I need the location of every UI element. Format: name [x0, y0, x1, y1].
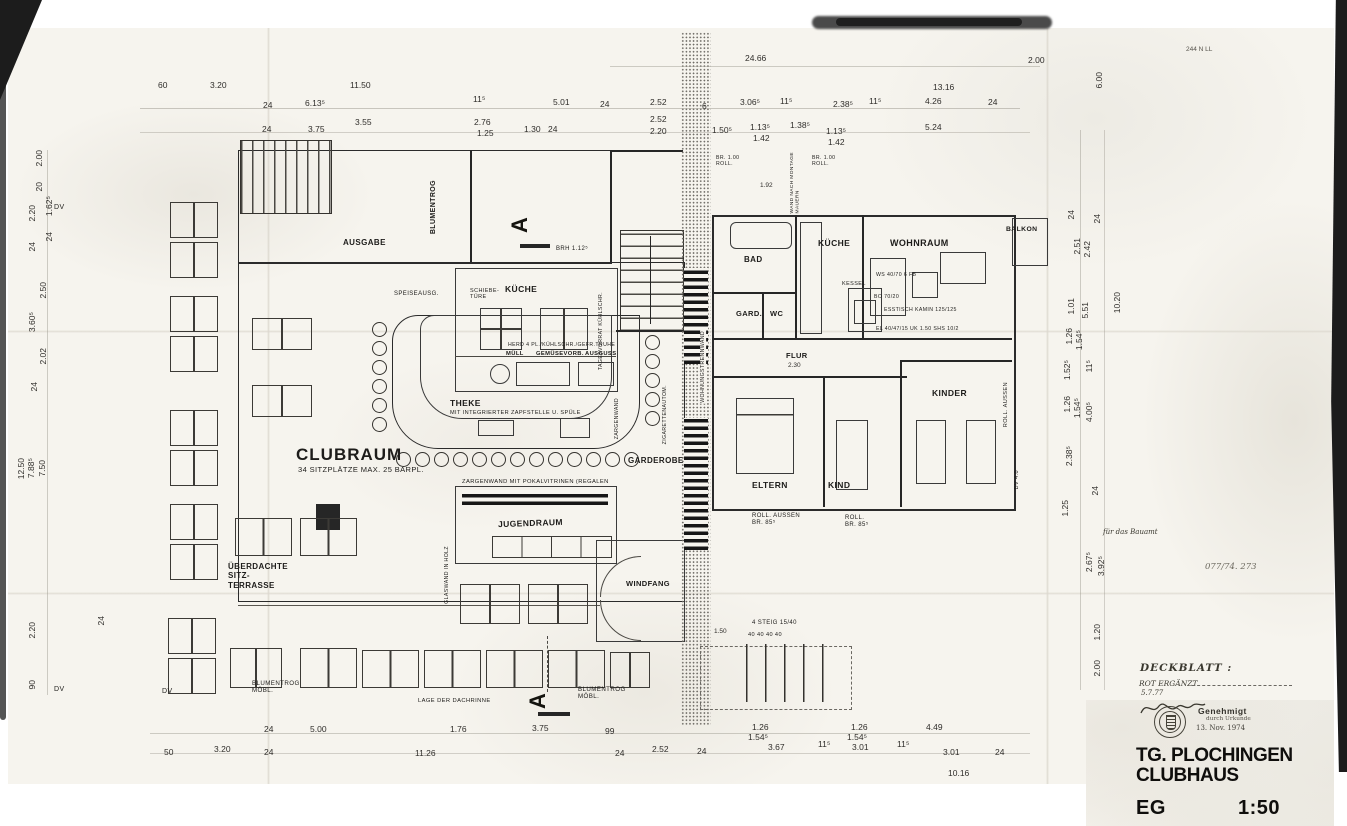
dim-value: 3.06⁵: [740, 97, 760, 107]
bed-kinder: [916, 420, 946, 484]
dim-value: 3.60⁵: [27, 312, 37, 332]
dim-value: 2.00: [1028, 55, 1045, 65]
terrace-table: [362, 650, 419, 688]
dim-value: 1.52⁵: [1062, 360, 1072, 380]
bar-stool: [372, 379, 387, 394]
dim-value: 1.50⁵: [712, 125, 732, 135]
dim-value: 24: [600, 99, 609, 109]
label-terrasse: ÜBERDACHTE SITZ- TERRASSE: [228, 562, 288, 590]
wall: [610, 150, 683, 152]
dim-value: 11.26: [415, 748, 436, 758]
dim-value: 1.13⁵: [750, 122, 770, 132]
dim-value: 5.01: [553, 97, 570, 107]
scanned-floorplan: AUSGABE BLUMENTROG KÜCHE SPEISEAUSG. SCH…: [0, 0, 1347, 826]
dim-value: 24: [697, 746, 706, 756]
dim-value: 1.54⁵: [1072, 398, 1082, 418]
terrace-table: [170, 450, 218, 486]
dim-value: 6.00: [1094, 72, 1104, 89]
dim-value: 4.49: [926, 722, 943, 732]
note-wand-montage: WAND NACH MONTAGE MAUERN: [790, 152, 801, 213]
section-marker-bar: [538, 712, 570, 716]
bar-stool: [645, 354, 660, 369]
room-label-blumentrog: BLUMENTROG: [430, 180, 438, 234]
dim-value: 24: [27, 242, 37, 251]
dim-value: 2.20: [27, 205, 37, 222]
dim-value: 24: [262, 124, 271, 134]
bar-stool: [491, 452, 506, 467]
room-label-kueche-whg: KÜCHE: [818, 238, 850, 248]
note-zigarettenautomat: ZIGARETTENAUTOM.: [662, 385, 668, 444]
bar-stool: [645, 335, 660, 350]
note-bauamt-handwritten: für das Bauamt: [1103, 528, 1158, 536]
bar-stool: [567, 452, 582, 467]
note-dv: DV: [162, 688, 173, 696]
terrace-table: [170, 504, 218, 540]
dim-value: 7.50: [37, 460, 47, 477]
approval-seal: [1154, 706, 1186, 738]
note-dv40-vertical: DV 4.0: [1014, 470, 1021, 490]
dim-value: 24: [44, 232, 54, 241]
dim-value: 1.25: [477, 128, 494, 138]
terrace-table: [548, 650, 605, 688]
dim-value: 7.88⁵: [26, 458, 36, 478]
bar-stool: [645, 411, 660, 426]
note-brh: BRH 1.12⁵: [556, 246, 588, 253]
section-marker-a-bottom: A: [525, 693, 551, 709]
dim-value: 1.38⁵: [790, 120, 810, 130]
dim-value: 2.76: [474, 117, 491, 127]
terrace-table: [170, 242, 218, 278]
dim-value: 2.52: [650, 97, 667, 107]
note-dv: DV: [54, 686, 65, 694]
dim-value: 11⁵: [818, 739, 830, 749]
terrace-table: [610, 652, 650, 688]
dim-value: 3.67: [768, 742, 785, 752]
note-zargenwand: ZARGENWAND MIT POKALVITRINEN (REGALEN: [462, 479, 609, 486]
dim-value: 2.00: [1092, 660, 1102, 677]
dim-value: 1.26: [1062, 396, 1072, 413]
room-label-garderobe: GARDEROBE: [628, 456, 684, 465]
terrace-table: [424, 650, 481, 688]
dim-value: 1.26: [851, 722, 868, 732]
bar-stool: [605, 452, 620, 467]
dim-value: 24: [263, 100, 272, 110]
dim-value: 2.67⁵: [1084, 552, 1094, 572]
note-wohnungstrennwand: WOHNUNGSTRENNWAND: [700, 330, 706, 404]
note-glaswand: GLASWAND IN HOLZ: [444, 546, 450, 604]
terrace-table: [170, 336, 218, 372]
dimension-line: [140, 132, 1030, 133]
staircase-central: [620, 230, 684, 332]
room-label-kind: KIND: [828, 480, 850, 490]
note-height-reference: 244 N LL: [1186, 46, 1212, 53]
room-label-eltern: ELTERN: [752, 480, 788, 490]
dim-value: 1.30: [524, 124, 541, 134]
note-bo: BO 70/20: [874, 294, 899, 300]
dim-value: 3.01: [943, 747, 960, 757]
dim-value: 1.54⁵: [1074, 330, 1084, 350]
bar-stool: [472, 452, 487, 467]
dim-value: 1.42: [828, 137, 845, 147]
dim-value: 99: [605, 726, 614, 736]
note-dv: DV: [54, 204, 65, 212]
terrace-table: [170, 296, 218, 332]
dim-value: 12.50: [16, 458, 26, 479]
dim-value: 24: [1066, 210, 1076, 219]
dim-value: 13.16: [933, 82, 954, 92]
dim-value: 4.26: [925, 96, 942, 106]
bar-stools-left: [372, 322, 387, 432]
bar-stool: [434, 452, 449, 467]
dim-value: 2.20: [27, 622, 37, 639]
dim-value: 1.42: [753, 133, 770, 143]
bed-eltern: [736, 398, 794, 474]
bar-fixture: [560, 418, 590, 438]
dim-value: 90: [27, 680, 37, 689]
note-steig-dims: 40 40 40 40: [748, 632, 782, 639]
wall: [762, 292, 764, 340]
title-scale: 1:50: [1238, 797, 1280, 820]
note-br-roll-right: BR. 1.00 ROLL.: [812, 155, 835, 167]
revision-dash-line: [1192, 685, 1292, 686]
dim-value: 1.54⁵: [847, 732, 867, 742]
dim-value: 1.54⁵: [748, 732, 768, 742]
dim-value: 10.16: [948, 768, 969, 778]
dim-value: 24: [548, 124, 557, 134]
vitrine-shelf: [462, 490, 608, 505]
table: [252, 385, 312, 417]
dim-value: 5.51: [1080, 302, 1090, 319]
dim-value: 1.92: [760, 182, 773, 189]
dim-value: 11⁵: [1084, 360, 1094, 372]
dim-value: 2.42: [1082, 241, 1092, 258]
bar-stool: [645, 373, 660, 388]
wall: [616, 330, 683, 332]
label-theke-sub: MIT INTEGRIERTER ZAPFSTELLE U. SPÜLE: [450, 410, 581, 417]
terrace-table: [528, 584, 588, 624]
dim-value: 10.20: [1112, 292, 1122, 313]
dim-value: 24: [264, 724, 273, 734]
bar-stool: [529, 452, 544, 467]
approval-stamp-text: Genehmigt: [1198, 706, 1247, 716]
wall: [900, 360, 1012, 362]
dim-value: 11.50: [350, 80, 371, 90]
dim-value: 24: [988, 97, 997, 107]
dim-value: 3.20: [210, 80, 227, 90]
note-roll-aussen-vertical: ROLL. AUSSEN: [1003, 382, 1010, 427]
bar-stools-right: [645, 335, 660, 426]
dim-value: 2.52: [650, 114, 667, 124]
dim-value: 1.50: [714, 628, 727, 635]
dim-value: 3.75: [308, 124, 325, 134]
dim-value: 1.62⁵: [44, 196, 54, 216]
dim-value: 6.13⁵: [305, 98, 325, 108]
bar-stool: [548, 452, 563, 467]
deckblatt-label: DECKBLATT :: [1140, 662, 1232, 674]
bar-stool: [372, 398, 387, 413]
dim-value: 3.20: [214, 744, 231, 754]
dim-value: 3.75: [532, 723, 549, 733]
terrace-table: [300, 518, 357, 556]
dim-value: 5.24: [925, 122, 942, 132]
dim-value: 1.26: [1064, 328, 1074, 345]
table: [252, 318, 312, 350]
scan-artifact-left-edge: [0, 60, 6, 720]
dim-value: 1.20: [1092, 624, 1102, 641]
room-label-gard: GARD.: [736, 310, 762, 319]
dim-value: 3.92⁵: [1096, 556, 1106, 576]
dim-value: 2.38⁵: [1064, 446, 1074, 466]
dim-value: 60: [158, 80, 167, 90]
dimension-line: [150, 753, 1030, 754]
room-label-kueche-club: KÜCHE: [505, 284, 537, 294]
bed-kinder: [966, 420, 996, 484]
staircase-northwest: [240, 140, 332, 214]
terrace-table: [486, 650, 543, 688]
room-label-flur: FLUR: [786, 352, 808, 361]
dimension-line: [150, 733, 1030, 734]
section-marker-bar: [520, 244, 550, 248]
note-esstisch: ESSTISCH KAMIN 125/125: [884, 307, 957, 313]
exterior-steps: [746, 644, 828, 702]
wall: [470, 150, 472, 262]
room-label-wc: WC: [770, 310, 783, 319]
wall: [795, 215, 797, 340]
dim-value: 3.01: [852, 742, 869, 752]
wardrobe-lockers: [684, 418, 708, 550]
title-project2: CLUBHAUS: [1136, 765, 1239, 787]
bar-stools-bottom: [396, 452, 639, 467]
dim-value: 2.50: [38, 282, 48, 299]
dim-value: 1.13⁵: [826, 126, 846, 136]
dim-value: 24: [1092, 214, 1102, 223]
stipple-wall: [681, 32, 711, 726]
dim-value: 24: [995, 747, 1004, 757]
wall: [712, 338, 1012, 340]
bar-fixture: [478, 420, 514, 436]
fold-crease: [1046, 28, 1049, 784]
terrace-table: [460, 584, 520, 624]
terrace-table: [170, 544, 218, 580]
note-steig: 4 STEIG 15/40: [752, 620, 797, 627]
table: [492, 536, 612, 558]
room-label-kessel: KESSEL: [842, 281, 866, 287]
label-blumentrog-moebl-left: BLUMENTROG MÖBL.: [252, 680, 300, 695]
note-lage-dachrinne: LAGE DER DACHRINNE: [418, 698, 491, 705]
dim-value: 2.51: [1072, 238, 1082, 255]
note-br-roll-left: BR. 1.00 ROLL.: [716, 155, 739, 167]
dim-value: 6: [702, 101, 707, 111]
dim-value: 2.38⁵: [833, 99, 853, 109]
bar-counter-inner: [420, 315, 612, 419]
terrace-table: [168, 618, 216, 654]
bar-stool: [372, 417, 387, 432]
note-roll-aussen: ROLL. AUSSEN BR. 85⁵: [752, 513, 800, 527]
room-label-bad: BAD: [744, 255, 763, 264]
room-label-balkon: BALKON: [1006, 226, 1037, 234]
dim-value: 2.30: [788, 362, 801, 369]
revision-date: 5.7.77: [1141, 689, 1163, 697]
stair-arrow: [650, 236, 651, 324]
note-speiseausgabe: SPEISEAUSG.: [394, 291, 439, 298]
bar-stool: [372, 322, 387, 337]
terrace-table: [300, 648, 357, 688]
section-line: [547, 636, 548, 692]
dim-value: 1.01: [1066, 298, 1076, 315]
wall: [712, 376, 907, 378]
dim-value: 1.76: [450, 724, 467, 734]
approval-stamp-date: 13. Nov. 1974: [1196, 724, 1245, 732]
dim-value: 11⁵: [897, 739, 909, 749]
dim-value: 24.66: [745, 53, 766, 63]
note-roll: ROLL. BR. 85⁵: [845, 515, 869, 529]
dimension-line: [1104, 130, 1105, 690]
revision-note: ROT ERGÄNZT: [1139, 679, 1198, 688]
dim-value: 5.00: [310, 724, 327, 734]
terrace-table: [168, 658, 216, 694]
title-project: TG. PLOCHINGEN: [1136, 745, 1293, 767]
bar-stool: [372, 360, 387, 375]
title-floor: EG: [1136, 797, 1166, 820]
dim-value: 24: [96, 616, 106, 625]
bar-stool: [372, 341, 387, 356]
room-label-theke: THEKE: [450, 398, 481, 408]
bar-stool: [645, 392, 660, 407]
dim-value: 1.25: [1060, 500, 1070, 517]
note-ws: WS 40/70 6 FB: [876, 272, 916, 278]
dim-value: 20: [34, 182, 44, 191]
dim-value: 2.02: [38, 348, 48, 365]
bar-stool: [586, 452, 601, 467]
bar-stool: [510, 452, 525, 467]
label-blumentrog-moebl-right: BLUMENTROG MÖBL.: [578, 686, 626, 701]
room-label-clubraum: CLUBRAUM: [296, 445, 402, 465]
dim-value: 24: [29, 382, 39, 391]
note-zargenwand-vertical: ZARGENWAND: [614, 398, 620, 439]
dimension-line: [610, 66, 1040, 67]
bathtub: [730, 222, 792, 249]
dim-value: 24: [264, 747, 273, 757]
room-label-wohnraum: WOHNRAUM: [890, 238, 949, 249]
note-fileno-handwritten: 077/74. 273: [1205, 562, 1257, 572]
dim-value: 3.55: [355, 117, 372, 127]
dim-value: 2.20: [650, 126, 667, 136]
label-clubraum-sub: 34 SITZPLÄTZE MAX. 25 BARPL.: [298, 466, 424, 475]
dim-value: 2.00: [34, 150, 44, 167]
terrace-table: [170, 410, 218, 446]
section-marker-a-top: A: [507, 217, 533, 233]
dim-value: 24: [1090, 486, 1100, 495]
dim-value: 11⁵: [473, 94, 485, 104]
dim-value: 2.52: [652, 744, 669, 754]
dim-value: 11⁵: [780, 96, 792, 106]
dim-value: 50: [164, 747, 173, 757]
room-label-kinder: KINDER: [932, 388, 967, 398]
room-label-ausgabe: AUSGABE: [343, 238, 386, 247]
dim-value: 24: [615, 748, 624, 758]
wall: [823, 376, 825, 507]
sofa: [940, 252, 986, 284]
dim-value: 4.00⁵: [1084, 402, 1094, 422]
scan-artifact-top-band-core: [836, 18, 1022, 26]
terrace-table: [170, 202, 218, 238]
note-el: EL 40/47/15 UK 1.50 SHS 10/2: [876, 326, 959, 332]
wall: [712, 292, 797, 294]
wall: [610, 150, 612, 262]
note-schiebetuere: SCHIEBE- TÜRE: [470, 288, 499, 301]
approval-stamp-sub: durch Urkunde: [1206, 716, 1251, 722]
dim-value: 11⁵: [869, 96, 881, 106]
seal-crest: [1166, 715, 1176, 730]
bar-stool: [453, 452, 468, 467]
wall: [900, 360, 902, 507]
dim-value: 1.26: [752, 722, 769, 732]
terrace-table: [235, 518, 292, 556]
